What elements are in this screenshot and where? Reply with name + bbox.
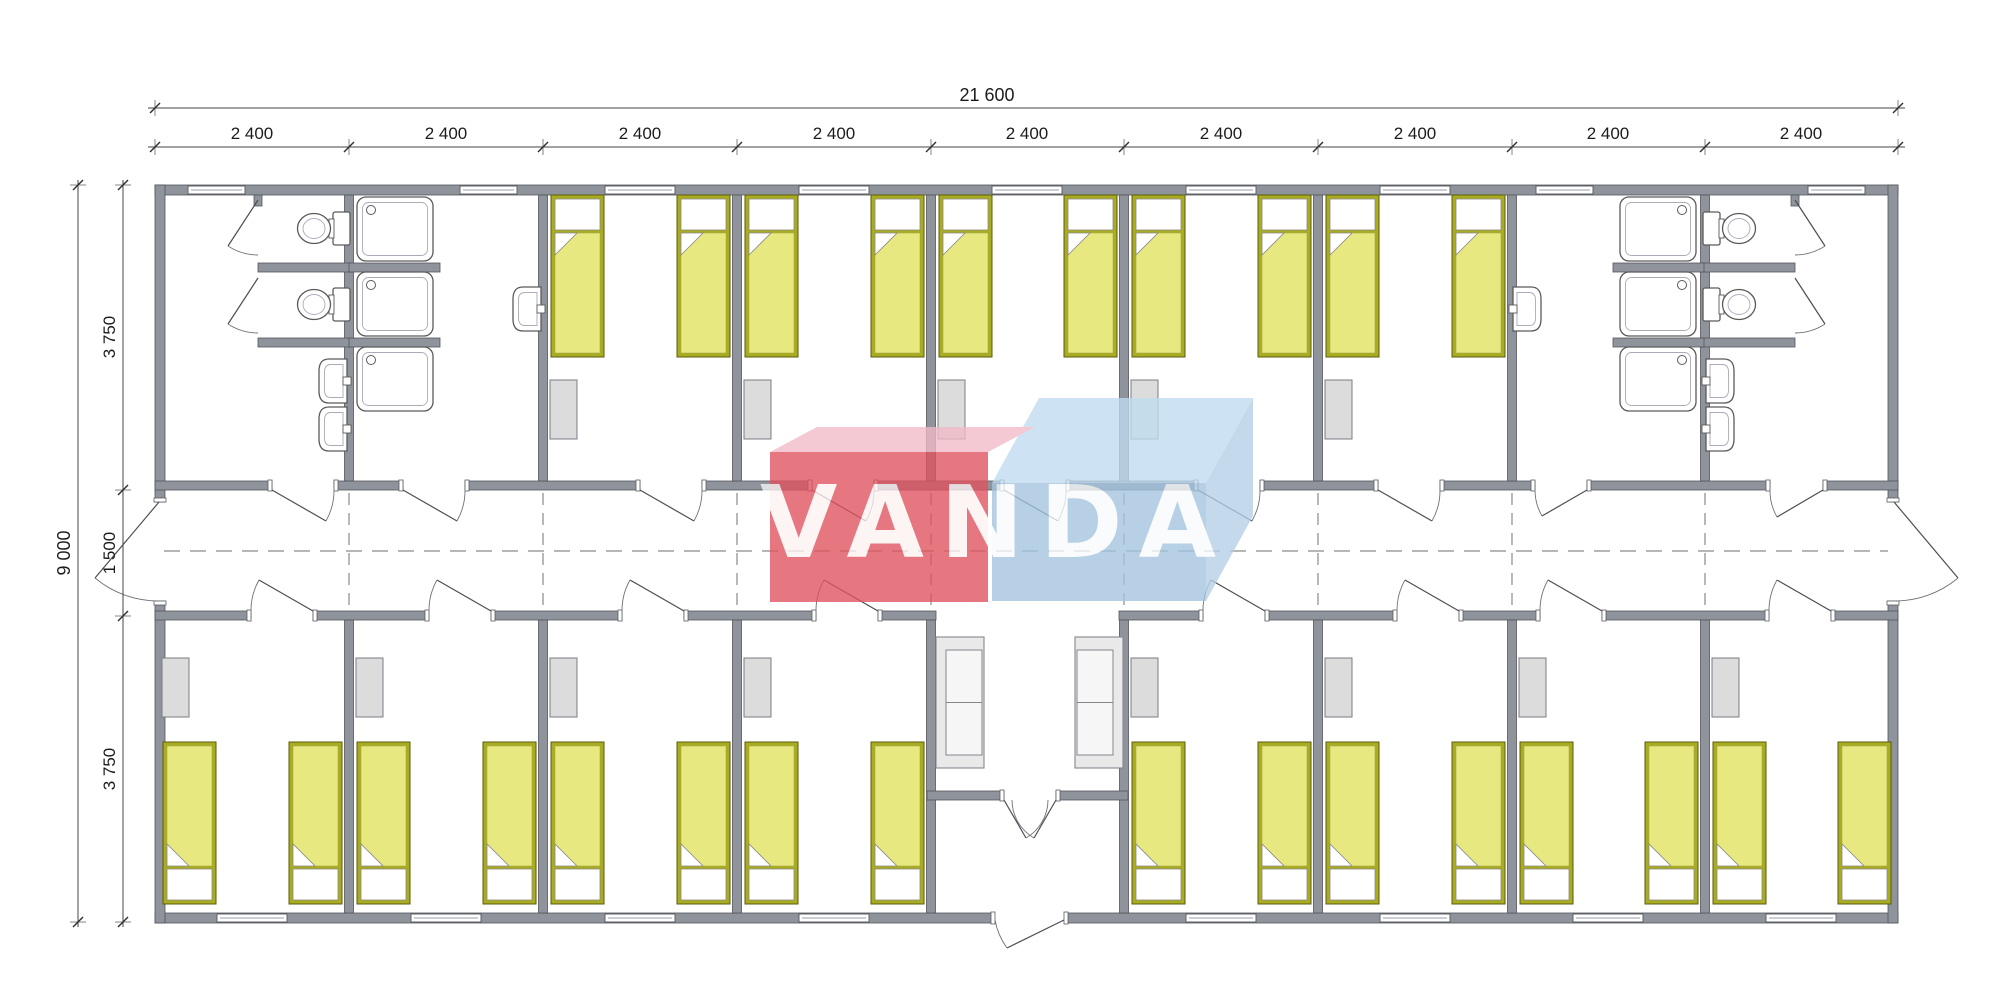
bed	[745, 742, 798, 904]
shower-tray	[1620, 272, 1696, 336]
locker	[1131, 658, 1158, 717]
bed	[551, 195, 604, 357]
jamb-entrance-left	[991, 912, 995, 924]
corridor-south-wall	[155, 611, 1898, 620]
shower-tray	[357, 272, 433, 336]
floor-plan-page: VANDA 21 600 2 400 2 400 2 400 2 400 2 4…	[0, 0, 2000, 999]
toilet	[298, 288, 351, 321]
jamb-vestibule-left	[1000, 790, 1004, 801]
jamb-corridor-left-bottom	[154, 601, 166, 605]
dim-bay-9: 2 400	[1780, 124, 1823, 143]
bed	[483, 742, 536, 904]
jamb-corridor-right-bottom	[1887, 601, 1899, 605]
exterior-wall-left-upper	[155, 185, 165, 502]
dim-bay-4: 2 400	[813, 124, 856, 143]
doors-wc-stalls	[228, 200, 1825, 333]
dim-bay-6: 2 400	[1200, 124, 1243, 143]
shower-tray	[1620, 197, 1696, 261]
toilet	[1703, 212, 1756, 245]
corridor-exit-door-right	[1894, 502, 1958, 578]
wash-basin	[319, 407, 351, 451]
entrance-opening	[995, 913, 1064, 924]
toilet	[1703, 288, 1756, 321]
bay-labels: 2 400 2 400 2 400 2 400 2 400 2 400 2 40…	[231, 124, 1823, 143]
bed	[1132, 742, 1185, 904]
bed	[939, 195, 992, 357]
vestibule-double-door	[1004, 800, 1056, 838]
dim-bay-7: 2 400	[1394, 124, 1437, 143]
locker	[1325, 380, 1352, 439]
bed	[1258, 195, 1311, 357]
locker	[550, 380, 577, 439]
bed	[1326, 742, 1379, 904]
watermark-text: VANDA	[760, 464, 1232, 581]
dim-bay-3: 2 400	[619, 124, 662, 143]
bed	[1838, 742, 1891, 904]
locker	[1712, 658, 1739, 717]
bed	[1452, 742, 1505, 904]
locker	[162, 658, 189, 717]
locker	[744, 380, 771, 439]
bed	[677, 195, 730, 357]
dim-total-width: 21 600	[959, 85, 1014, 105]
bed	[745, 195, 798, 357]
sofa	[936, 637, 984, 768]
wash-basin	[1702, 359, 1734, 403]
floor-plan-drawing: VANDA 21 600 2 400 2 400 2 400 2 400 2 4…	[0, 0, 2000, 999]
jamb-corridor-left-top	[154, 498, 166, 502]
bed	[1064, 195, 1117, 357]
jamb-vestibule-right	[1056, 790, 1060, 801]
locker	[550, 658, 577, 717]
bed	[1326, 195, 1379, 357]
dim-bay-5: 2 400	[1006, 124, 1049, 143]
dim-total-height: 9 000	[54, 530, 74, 575]
bed	[551, 742, 604, 904]
dim-bay-8: 2 400	[1587, 124, 1630, 143]
locker	[356, 658, 383, 717]
wash-basin	[1702, 407, 1734, 451]
entrance-door	[1007, 920, 1064, 948]
entrance-door-arc	[995, 920, 1007, 948]
bed	[1452, 195, 1505, 357]
bed	[1645, 742, 1698, 904]
shower-tray	[1620, 347, 1696, 411]
vestibule-divider-right	[1056, 791, 1128, 800]
locker	[1519, 658, 1546, 717]
dim-room-depth-bottom: 3 750	[100, 748, 119, 791]
dim-room-depth-top: 3 750	[100, 316, 119, 359]
bed	[871, 195, 924, 357]
bed	[1520, 742, 1573, 904]
bed	[1713, 742, 1766, 904]
locker	[744, 658, 771, 717]
dim-bay-2: 2 400	[425, 124, 468, 143]
stall-and-shelf-walls	[254, 195, 1799, 347]
wash-basin	[513, 287, 545, 331]
dim-corridor: 1 500	[100, 532, 119, 575]
jambs-bottom-doors	[247, 610, 1835, 621]
watermark-pink-top-face	[770, 427, 1035, 452]
watermark: VANDA	[760, 398, 1253, 602]
wash-basin	[1509, 287, 1541, 331]
dim-bay-1: 2 400	[231, 124, 274, 143]
locker	[1325, 658, 1352, 717]
shower-tray	[357, 347, 433, 411]
exterior-wall-right-upper	[1888, 185, 1898, 502]
bed	[289, 742, 342, 904]
shower-tray	[357, 197, 433, 261]
corridor-exit-arc-left	[95, 578, 159, 601]
jamb-corridor-right-top	[1887, 498, 1899, 502]
toilet	[298, 212, 351, 245]
bed	[871, 742, 924, 904]
wash-basin	[319, 359, 351, 403]
bed	[163, 742, 216, 904]
bed	[357, 742, 410, 904]
sofa	[1075, 637, 1123, 768]
corridor-exit-arc-right	[1894, 578, 1958, 601]
jamb-entrance-right	[1064, 912, 1068, 924]
bed	[1132, 195, 1185, 357]
vestibule-divider-left	[927, 791, 1004, 800]
bed	[1258, 742, 1311, 904]
bed	[677, 742, 730, 904]
